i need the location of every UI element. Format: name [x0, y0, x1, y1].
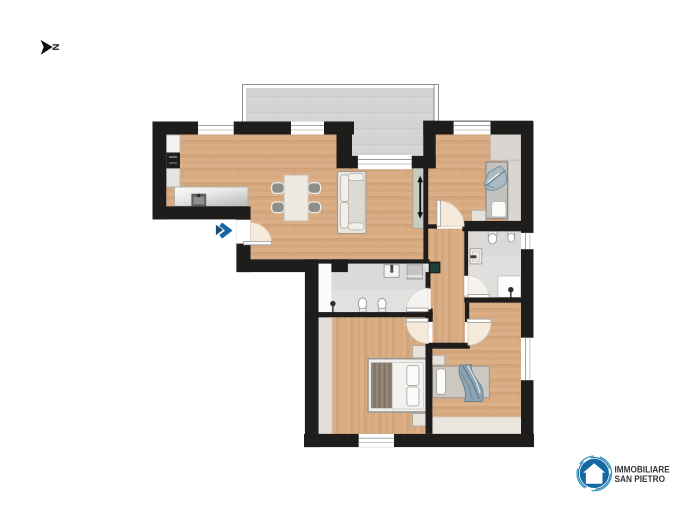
svg-text:SAN PIETRO: SAN PIETRO: [615, 474, 666, 484]
svg-text:N: N: [50, 44, 61, 51]
